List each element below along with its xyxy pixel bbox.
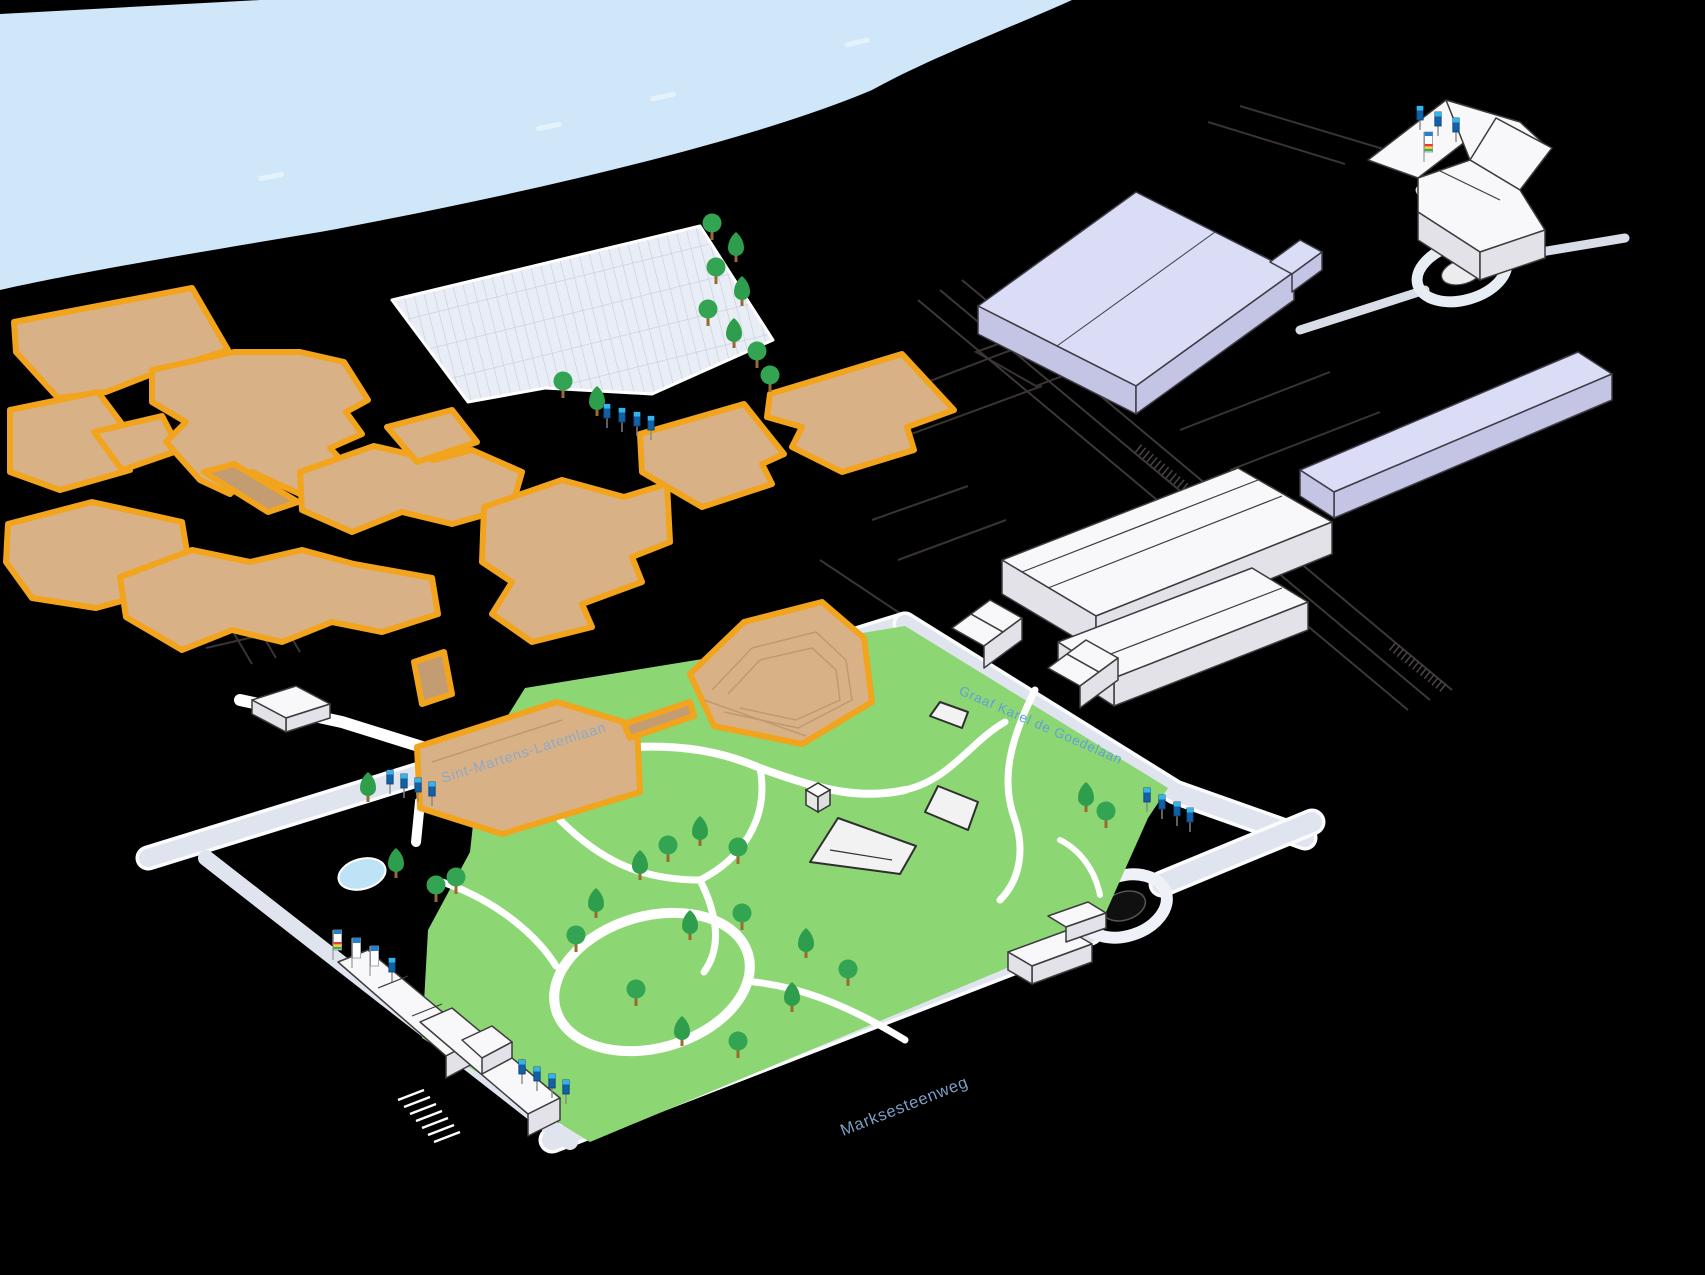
park-pavilion-cube xyxy=(806,783,830,812)
highlighted-corridor[interactable] xyxy=(414,652,452,704)
campus-map-canvas: Sint-Martens-Latemlaan Graaf Karel de Go… xyxy=(0,0,1705,1275)
campus-map: Sint-Martens-Latemlaan Graaf Karel de Go… xyxy=(0,0,1705,1275)
